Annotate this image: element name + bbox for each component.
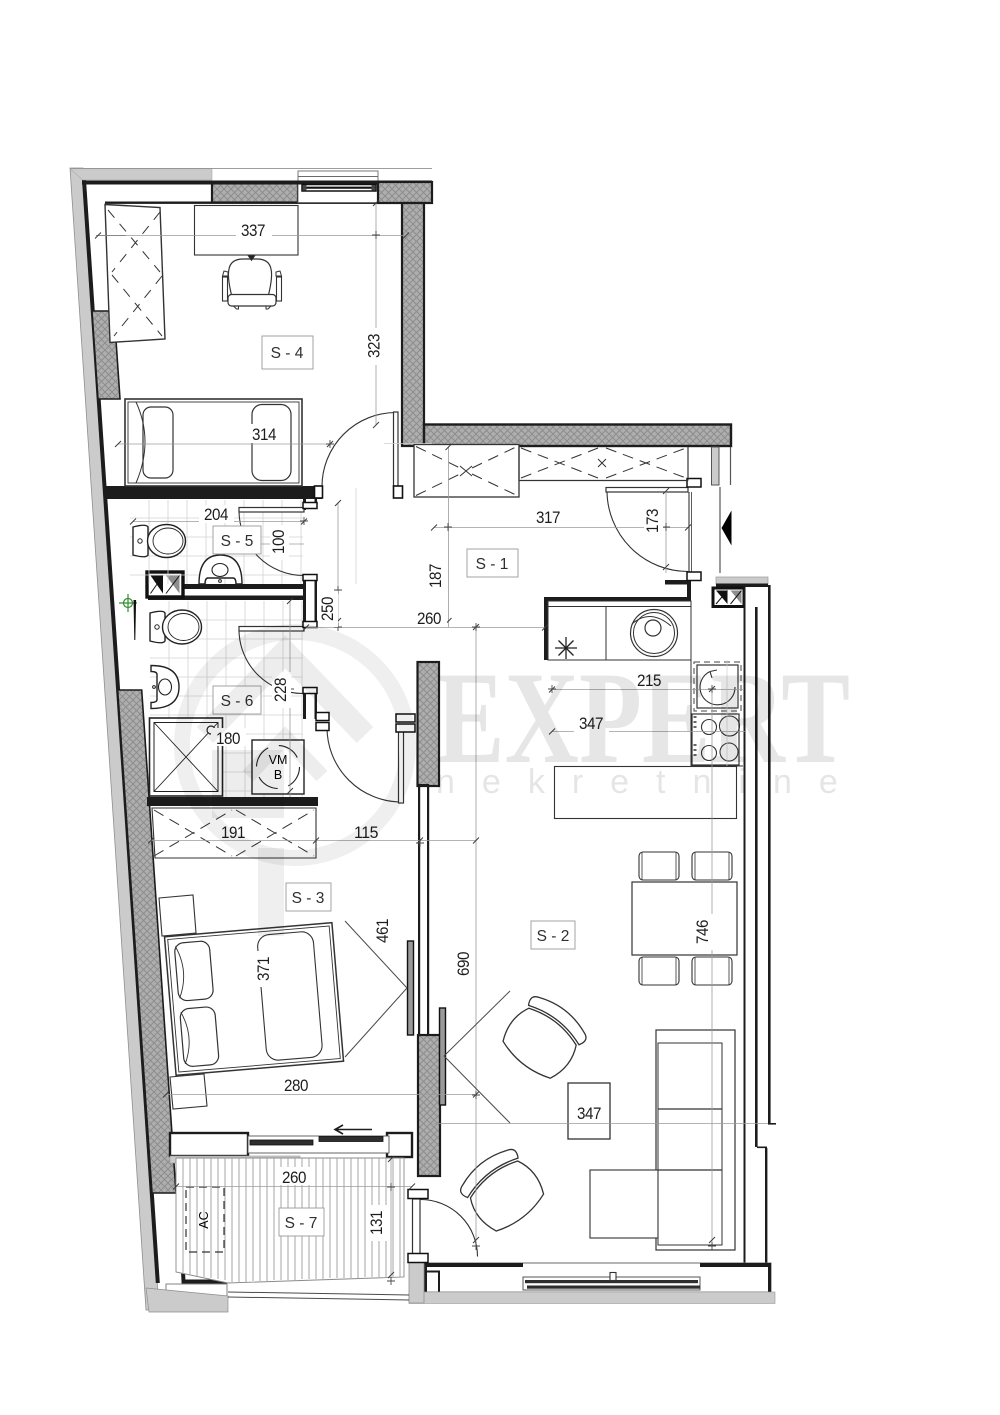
svg-text:746: 746: [693, 920, 712, 944]
svg-text:250: 250: [318, 597, 337, 621]
svg-text:337: 337: [241, 221, 265, 240]
svg-text:AC: AC: [197, 1211, 211, 1228]
svg-text:280: 280: [284, 1076, 308, 1095]
svg-text:S - 3: S - 3: [292, 890, 325, 907]
svg-text:371: 371: [254, 957, 273, 981]
svg-text:173: 173: [643, 509, 662, 533]
svg-text:347: 347: [577, 1104, 601, 1123]
svg-text:S - 7: S - 7: [285, 1215, 318, 1232]
svg-text:S - 5: S - 5: [221, 533, 254, 550]
svg-text:317: 317: [536, 508, 560, 527]
svg-text:100: 100: [269, 530, 288, 554]
svg-text:260: 260: [282, 1168, 306, 1187]
svg-text:260: 260: [417, 609, 441, 628]
svg-text:314: 314: [252, 425, 276, 444]
svg-text:461: 461: [373, 919, 392, 943]
svg-text:131: 131: [367, 1211, 386, 1235]
svg-text:690: 690: [454, 952, 473, 976]
svg-text:S - 2: S - 2: [537, 928, 570, 945]
svg-text:187: 187: [426, 564, 445, 588]
svg-text:S - 1: S - 1: [476, 556, 509, 573]
svg-text:323: 323: [364, 334, 383, 358]
svg-text:S - 4: S - 4: [271, 345, 304, 362]
svg-text:228: 228: [271, 678, 290, 702]
svg-text:204: 204: [204, 505, 228, 524]
svg-text:nekretnine: nekretnine: [436, 763, 865, 801]
